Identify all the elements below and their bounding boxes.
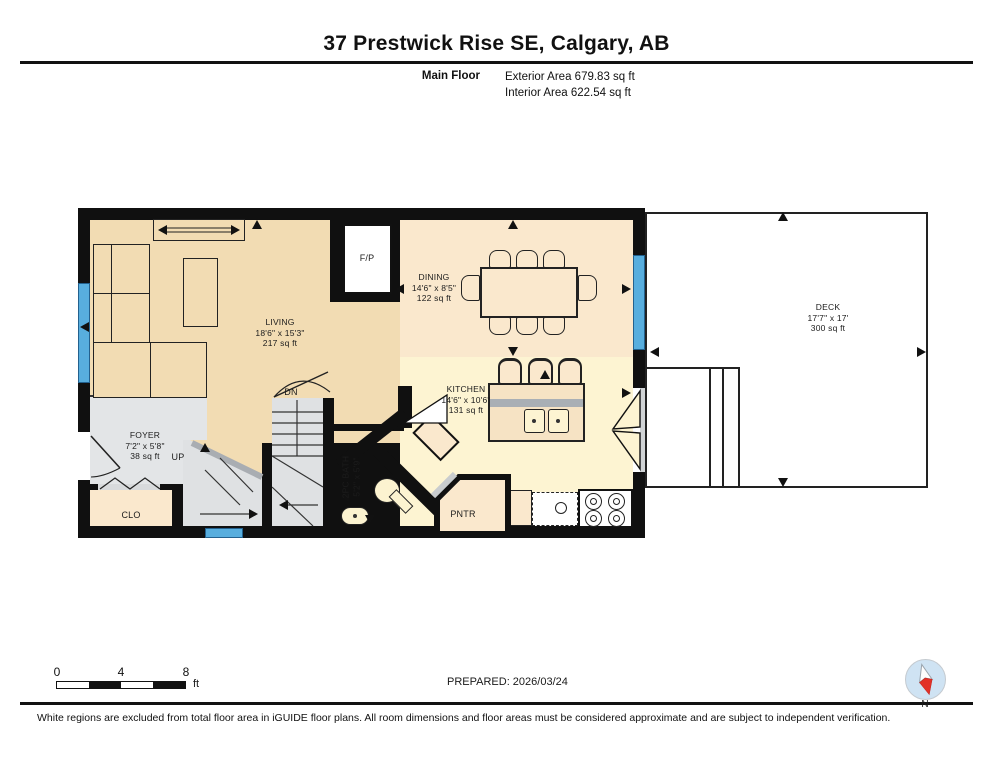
header-divider [20,61,973,64]
deck-label: DECK17'7" x 17'300 sq ft [807,302,848,334]
dining-chair [543,317,565,335]
compass-north-label: N [921,699,928,710]
living-room-label: LIVING18'6" x 15'3"217 sq ft [255,317,304,349]
stove [578,489,633,528]
dining-chair [516,250,538,268]
exterior-area: Exterior Area 679.83 sq ft [505,69,635,85]
prepared-date: PREPARED: 2026/03/24 [447,676,568,688]
closet-label: CLO [121,510,140,521]
island-counter-band [490,399,583,407]
sink-drain [532,419,536,423]
bar-stool [528,358,553,385]
scale-tick-4: 4 [118,665,125,679]
stairs-up-floor [183,440,262,526]
counter [510,490,532,526]
bar-stool [498,358,522,385]
stair-landing-window [205,528,243,538]
foyer-label: FOYER7'2" x 5'8"38 sq ft [125,430,164,462]
bar-stool [558,358,582,385]
scale-tick-0: 0 [54,665,61,679]
dining-chair [578,275,597,301]
stair-divider-wall [262,452,272,526]
bath-top-wall [334,424,404,431]
window-bench [153,219,245,241]
page-title: 37 Prestwick Rise SE, Calgary, AB [0,32,993,56]
stairs-up-label: UP [172,452,185,463]
bath-label: 2PC BATH5'2" x 5'9" [341,456,362,499]
kitchen-bath-wall-stub [398,386,412,428]
bath-left-wall [323,398,334,526]
kitchen-label: KITCHEN14'6" x 10'6"131 sq ft [441,384,490,416]
disclaimer-text: White regions are excluded from total fl… [37,712,967,724]
compass [905,659,946,700]
dining-room-label: DINING14'6" x 8'5"122 sq ft [412,272,456,304]
dining-chair [461,275,480,301]
dining-table [480,267,578,318]
coffee-table [183,258,218,327]
deck-stairs [645,367,740,488]
scale-tick-8: 8 [183,665,190,679]
floorplan-page: 37 Prestwick Rise SE, Calgary, AB Main F… [0,0,993,768]
interior-area: Interior Area 622.54 sq ft [505,85,635,101]
stairs-down-floor [272,398,323,526]
closet-door-threshold [98,484,160,490]
pantry-label: PNTR [450,509,475,520]
dining-chair [543,250,565,268]
dining-chair [489,317,511,335]
closet-wall-b [160,484,172,490]
stairs-down-label: DN [284,387,297,398]
sink-drain [556,419,560,423]
fireplace-label: F/P [360,253,375,264]
front-door-opening [78,432,90,480]
closet-right-wall [172,484,183,526]
area-summary: Exterior Area 679.83 sq ft Interior Area… [505,69,635,101]
sofa-back-section [93,244,150,343]
living-window [78,283,90,383]
dining-window [633,255,645,350]
dining-chair [489,250,511,268]
sofa-chaise-section [93,342,207,398]
bath-sink-drain [353,514,357,518]
scale-unit: ft [193,678,199,690]
closet-wall-a [90,484,98,490]
scale-bar [56,681,186,689]
footer-divider [20,702,973,705]
dishwasher-plate-icon [555,502,567,514]
compass-needle-icon [906,660,945,699]
floor-label: Main Floor [380,70,480,82]
dining-chair [516,317,538,335]
